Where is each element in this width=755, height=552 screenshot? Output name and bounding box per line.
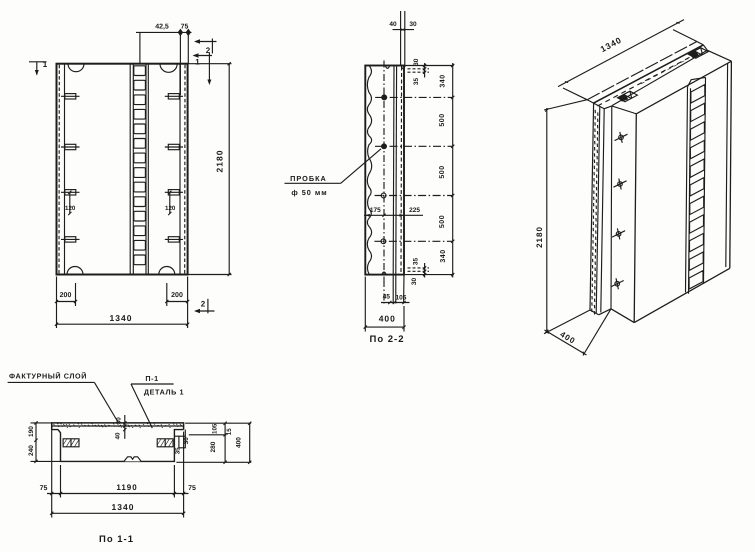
svg-text:340: 340 xyxy=(440,249,447,262)
svg-text:40: 40 xyxy=(389,21,397,28)
svg-text:35: 35 xyxy=(413,78,420,86)
svg-text:190: 190 xyxy=(28,426,35,437)
svg-text:1: 1 xyxy=(43,60,48,69)
svg-text:1340: 1340 xyxy=(112,502,135,512)
svg-text:42,5: 42,5 xyxy=(155,24,169,31)
svg-text:2180: 2180 xyxy=(535,226,544,248)
svg-text:105: 105 xyxy=(395,295,406,302)
svg-text:2: 2 xyxy=(201,300,206,309)
svg-text:500: 500 xyxy=(439,215,446,228)
svg-text:280: 280 xyxy=(210,441,217,452)
svg-text:75: 75 xyxy=(40,485,48,492)
svg-text:30: 30 xyxy=(116,417,123,424)
svg-text:500: 500 xyxy=(439,113,446,126)
svg-text:500: 500 xyxy=(439,165,446,178)
svg-text:400: 400 xyxy=(235,437,242,448)
svg-text:По 2-2: По 2-2 xyxy=(369,334,404,345)
svg-text:П-1: П-1 xyxy=(145,374,158,383)
svg-text:240: 240 xyxy=(28,445,35,456)
svg-text:40: 40 xyxy=(115,432,122,439)
svg-text:30: 30 xyxy=(411,278,418,286)
svg-text:200: 200 xyxy=(60,292,72,299)
svg-text:1: 1 xyxy=(195,58,200,67)
svg-text:45: 45 xyxy=(383,294,391,301)
svg-text:340: 340 xyxy=(440,74,447,87)
svg-text:30: 30 xyxy=(413,58,420,66)
svg-text:225: 225 xyxy=(409,207,420,214)
svg-text:200: 200 xyxy=(171,292,183,299)
svg-text:175: 175 xyxy=(370,207,381,214)
svg-text:75: 75 xyxy=(188,485,196,492)
svg-text:ф 50 мм: ф 50 мм xyxy=(291,188,327,197)
svg-text:35: 35 xyxy=(175,447,182,454)
svg-text:1340: 1340 xyxy=(110,313,133,323)
svg-text:По 1-1: По 1-1 xyxy=(99,534,134,545)
svg-text:ФАКТУРНЫЙ СЛОЙ: ФАКТУРНЫЙ СЛОЙ xyxy=(9,372,87,381)
svg-text:15: 15 xyxy=(226,428,233,435)
svg-text:75: 75 xyxy=(181,24,189,31)
svg-text:400: 400 xyxy=(379,314,396,324)
svg-text:2180: 2180 xyxy=(215,150,225,173)
svg-text:35: 35 xyxy=(412,258,419,266)
svg-text:120: 120 xyxy=(65,205,76,212)
svg-text:1190: 1190 xyxy=(116,483,137,492)
svg-text:120: 120 xyxy=(165,205,176,212)
svg-text:30: 30 xyxy=(183,437,190,444)
svg-text:105: 105 xyxy=(212,423,219,434)
svg-text:ДЕТАЛЬ 1: ДЕТАЛЬ 1 xyxy=(144,388,184,397)
svg-text:2: 2 xyxy=(206,46,211,55)
svg-text:ПРОБКА: ПРОБКА xyxy=(290,174,327,183)
svg-text:30: 30 xyxy=(409,21,417,28)
